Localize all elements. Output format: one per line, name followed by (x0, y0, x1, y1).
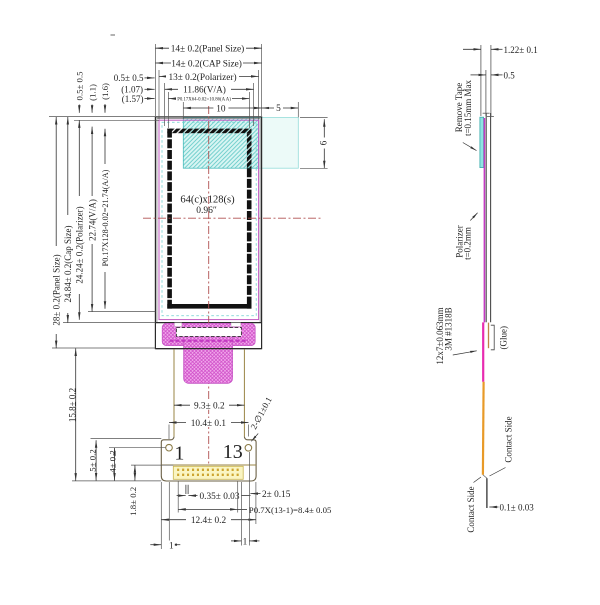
svg-text:P0.17X64-0.02=10.86(A A): P0.17X64-0.02=10.86(A A) (177, 98, 231, 103)
svg-text:22.74(V/A): 22.74(V/A) (87, 199, 97, 241)
svg-text:10.4± 0.1: 10.4± 0.1 (191, 419, 227, 429)
svg-text:15.8± 0.2: 15.8± 0.2 (68, 388, 78, 422)
svg-text:(1.1): (1.1) (87, 84, 97, 101)
svg-text:1: 1 (169, 541, 174, 551)
svg-text:11.86(V/A): 11.86(V/A) (183, 85, 226, 96)
svg-text:1.22± 0.1: 1.22± 0.1 (504, 45, 538, 55)
svg-text:0.5± 0.5: 0.5± 0.5 (75, 71, 85, 101)
svg-text:4± 0.2: 4± 0.2 (108, 450, 118, 472)
svg-text:13± 0.2(Polarizer): 13± 0.2(Polarizer) (168, 72, 236, 83)
svg-text:5± 0.2: 5± 0.2 (88, 449, 98, 471)
svg-text:3M #1318B: 3M #1318B (443, 307, 453, 350)
svg-text:14± 0.2(CAP Size): 14± 0.2(CAP Size) (171, 58, 242, 69)
svg-text:12.4± 0.2: 12.4± 0.2 (191, 516, 227, 526)
svg-text:t=0.2mm: t=0.2mm (463, 227, 473, 260)
svg-text:24.24± 0.2(Polarizer): 24.24± 0.2(Polarizer) (75, 206, 85, 283)
svg-text:2± 0.15: 2± 0.15 (262, 490, 291, 500)
svg-text:9.3± 0.2: 9.3± 0.2 (194, 402, 225, 412)
svg-text:1: 1 (174, 443, 184, 465)
svg-text:(1.57): (1.57) (122, 94, 144, 104)
svg-text:Contact Side: Contact Side (503, 416, 513, 462)
svg-text:t=0.15mm Max: t=0.15mm Max (463, 79, 473, 136)
svg-text:(Glue): (Glue) (498, 326, 508, 350)
svg-text:64(c)x128(s): 64(c)x128(s) (180, 195, 235, 206)
svg-text:0.5± 0.5: 0.5± 0.5 (114, 73, 144, 83)
svg-text:28± 0.2(Panel Size): 28± 0.2(Panel Size) (51, 254, 61, 325)
svg-text:Contact Side: Contact Side (466, 486, 476, 532)
svg-text:6: 6 (319, 140, 329, 145)
svg-text:P0.17X128-0.02=21.74(A/A): P0.17X128-0.02=21.74(A/A) (101, 169, 110, 266)
svg-text:14± 0.2(Panel Size): 14± 0.2(Panel Size) (171, 44, 245, 55)
svg-text:1: 1 (243, 537, 248, 547)
svg-text:0.5: 0.5 (504, 70, 516, 80)
svg-text:0.35± 0.03: 0.35± 0.03 (200, 492, 240, 502)
svg-text:24.84± 0.2(Cap Size): 24.84± 0.2(Cap Size) (63, 226, 73, 303)
svg-text:0.1± 0.03: 0.1± 0.03 (500, 503, 535, 513)
svg-text:5: 5 (276, 104, 281, 114)
svg-text:10: 10 (216, 104, 226, 114)
svg-text:P0.7X(13-1)=8.4± 0.05: P0.7X(13-1)=8.4± 0.05 (249, 505, 332, 515)
svg-text:1.8± 0.2: 1.8± 0.2 (128, 487, 138, 516)
svg-text:(1.6): (1.6) (100, 83, 110, 100)
svg-text:0.96″: 0.96″ (196, 206, 217, 216)
svg-text:13: 13 (223, 441, 243, 463)
